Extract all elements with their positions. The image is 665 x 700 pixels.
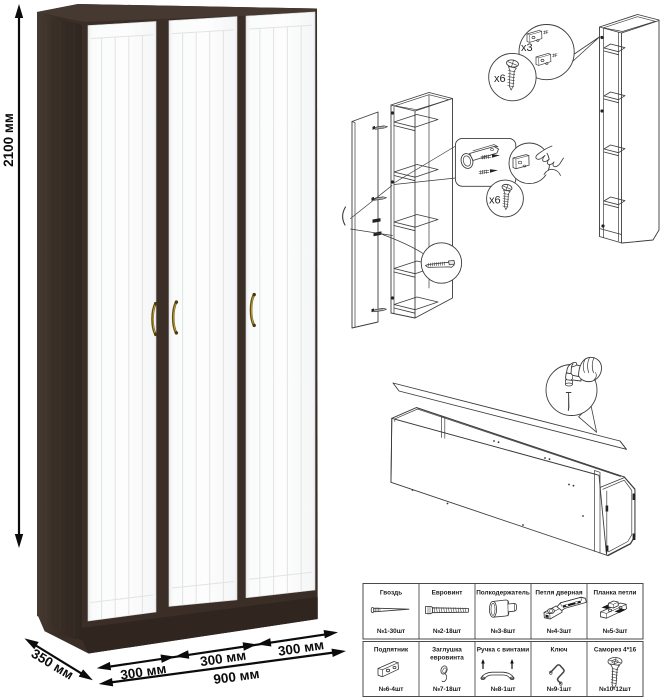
svg-text:№5-3шт: №5-3шт xyxy=(603,628,628,635)
svg-text:Ключ: Ключ xyxy=(551,647,568,654)
svg-text:Подпятник: Подпятник xyxy=(374,647,409,654)
svg-text:№9-1шт: №9-1шт xyxy=(547,686,572,693)
svg-text:№8-1шт: №8-1шт xyxy=(491,686,516,693)
svg-text:№7-18шт: №7-18шт xyxy=(433,686,461,693)
svg-text:Заглушка: Заглушка xyxy=(432,647,462,654)
svg-text:x6: x6 xyxy=(489,195,501,207)
svg-text:Ручка с винтами: Ручка с винтами xyxy=(477,647,530,654)
svg-text:евровинта: евровинта xyxy=(430,655,464,662)
svg-text:x6: x6 xyxy=(494,73,506,85)
svg-text:Саморез 4*16: Саморез 4*16 xyxy=(594,647,637,654)
svg-text:Полкодержатель: Полкодержатель xyxy=(476,590,530,597)
svg-text:900 мм: 900 мм xyxy=(212,666,260,687)
svg-text:Евровинт: Евровинт xyxy=(432,590,463,597)
svg-text:№3-8шт: №3-8шт xyxy=(491,628,516,635)
svg-text:Гвоздь: Гвоздь xyxy=(380,590,402,597)
svg-text:№1-30шт: №1-30шт xyxy=(377,628,405,635)
svg-text:Планка петли: Планка петли xyxy=(594,590,637,597)
svg-text:№6-4шт: №6-4шт xyxy=(379,686,404,693)
svg-text:Петля дверная: Петля дверная xyxy=(535,590,582,597)
svg-text:350 мм: 350 мм xyxy=(29,646,76,683)
svg-text:2100 мм: 2100 мм xyxy=(1,113,16,167)
svg-text:№4-3шт: №4-3шт xyxy=(547,628,572,635)
svg-text:№2-18шт: №2-18шт xyxy=(433,628,461,635)
svg-text:x3: x3 xyxy=(521,42,533,54)
